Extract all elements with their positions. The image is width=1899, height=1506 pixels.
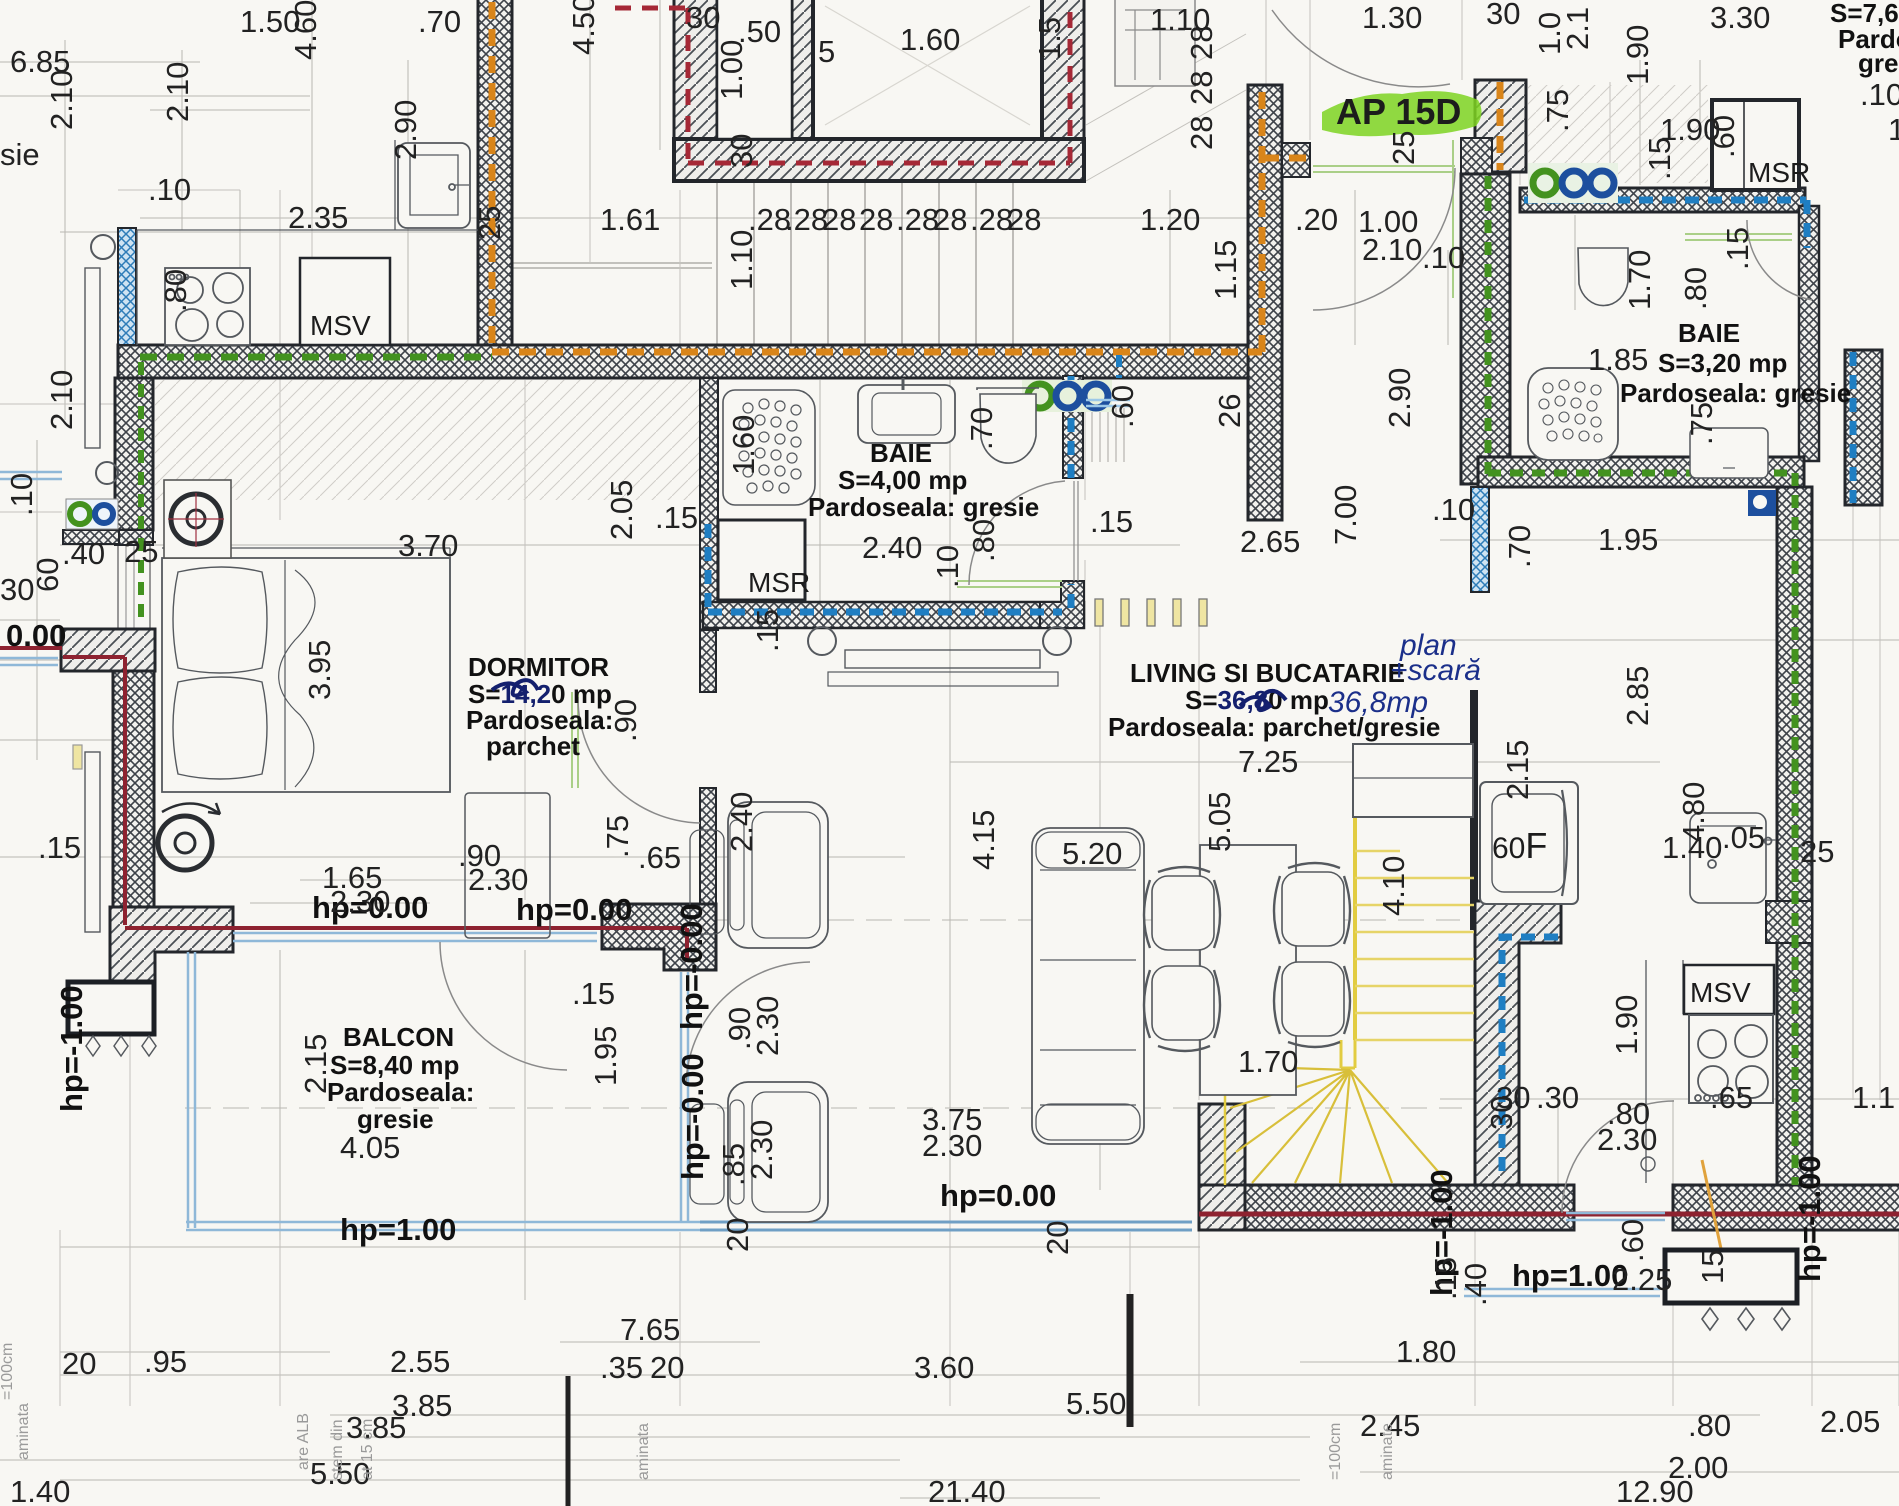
svg-text:3.30: 3.30 <box>1710 0 1770 35</box>
svg-text:gres: gres <box>1858 48 1899 78</box>
svg-text:BAIE: BAIE <box>1678 318 1740 348</box>
svg-text:.40: .40 <box>62 536 105 571</box>
svg-text:.90: .90 <box>608 699 643 742</box>
svg-text:60F: 60F <box>1492 825 1547 866</box>
svg-text:60: 60 <box>30 558 65 592</box>
svg-text:=100cm: =100cm <box>0 1343 16 1400</box>
svg-text:S=4,00 mp: S=4,00 mp <box>838 465 967 495</box>
svg-text:AP 15D: AP 15D <box>1336 91 1461 132</box>
svg-text:.20: .20 <box>1295 202 1338 237</box>
svg-text:2.40: 2.40 <box>724 792 759 852</box>
svg-text:30: 30 <box>1484 1096 1519 1130</box>
svg-text:.70: .70 <box>964 407 999 450</box>
svg-text:2.85: 2.85 <box>1620 666 1655 726</box>
svg-text:aminata: aminata <box>15 1403 32 1460</box>
svg-text:20: 20 <box>1040 1221 1075 1255</box>
svg-text:.75: .75 <box>1540 89 1575 132</box>
svg-text:MSR: MSR <box>1748 157 1810 188</box>
svg-text:21.40: 21.40 <box>928 1474 1006 1506</box>
svg-text:.80: .80 <box>158 269 193 312</box>
svg-text:5.05: 5.05 <box>1202 792 1237 852</box>
svg-text:30: 30 <box>1486 0 1520 31</box>
svg-text:25: 25 <box>1386 131 1421 165</box>
svg-text:1: 1 <box>1888 112 1899 147</box>
svg-text:BALCON: BALCON <box>343 1022 454 1052</box>
svg-text:hp=-0.00: hp=-0.00 <box>674 903 709 1030</box>
svg-text:26: 26 <box>1212 394 1247 428</box>
svg-text:plan: plan <box>1399 629 1457 662</box>
svg-text:hp=1.00: hp=1.00 <box>1512 1258 1628 1293</box>
svg-text:1.40: 1.40 <box>10 1474 70 1506</box>
svg-text:=100cm: =100cm <box>1327 1423 1344 1480</box>
svg-text:4.50: 4.50 <box>566 0 601 55</box>
svg-text:2.30: 2.30 <box>744 1120 779 1180</box>
svg-text:1.5: 1.5 <box>1032 17 1067 60</box>
svg-text:2.30: 2.30 <box>330 884 390 919</box>
svg-text:.65: .65 <box>638 840 681 875</box>
svg-text:.15: .15 <box>655 500 698 535</box>
svg-text:.15: .15 <box>572 976 615 1011</box>
svg-text:7.65: 7.65 <box>620 1312 680 1347</box>
svg-text:aminate: aminate <box>1379 1423 1396 1480</box>
svg-text:.60: .60 <box>1706 115 1741 158</box>
svg-text:.70: .70 <box>418 4 461 39</box>
svg-text:25: 25 <box>1800 834 1834 869</box>
svg-text:36,8mp: 36,8mp <box>1328 686 1428 719</box>
svg-text:15: 15 <box>1695 1250 1730 1284</box>
svg-text:0.00: 0.00 <box>6 618 66 653</box>
svg-text:20: 20 <box>720 1218 755 1252</box>
svg-text:28: 28 <box>859 202 893 237</box>
svg-text:2.30: 2.30 <box>1597 1122 1657 1157</box>
svg-text:.60: .60 <box>1615 1219 1650 1262</box>
svg-text:1.60: 1.60 <box>726 415 761 475</box>
svg-text:2.05: 2.05 <box>604 480 639 540</box>
svg-text:1.90: 1.90 <box>1609 995 1644 1055</box>
svg-text:are ALB: are ALB <box>295 1413 312 1470</box>
svg-text:S=3,20 mp: S=3,20 mp <box>1658 348 1787 378</box>
svg-text:.15: .15 <box>38 830 81 865</box>
svg-text:1.70: 1.70 <box>1622 250 1657 310</box>
svg-text:5.50: 5.50 <box>1066 1386 1126 1421</box>
svg-text:7.00: 7.00 <box>1328 485 1363 545</box>
svg-text:2.10: 2.10 <box>44 70 79 130</box>
svg-text:.10: .10 <box>148 172 191 207</box>
svg-text:1.30: 1.30 <box>1362 0 1422 35</box>
svg-text:.10: .10 <box>1432 492 1475 527</box>
svg-text:.80: .80 <box>1678 267 1713 310</box>
svg-text:3.70: 3.70 <box>398 528 458 563</box>
svg-text:.15: .15 <box>1090 504 1133 539</box>
svg-text:2.35: 2.35 <box>288 200 348 235</box>
svg-text:.10: .10 <box>1860 77 1899 112</box>
svg-text:.70: .70 <box>1502 525 1537 568</box>
svg-text:30: 30 <box>686 0 720 35</box>
svg-text:MSV: MSV <box>1690 977 1751 1008</box>
svg-text:.10: .10 <box>930 545 965 588</box>
svg-text:.75: .75 <box>1684 402 1719 445</box>
svg-text:.15: .15 <box>1642 137 1677 180</box>
svg-text:2.05: 2.05 <box>1820 1404 1880 1439</box>
svg-text:.10: .10 <box>1422 240 1465 275</box>
svg-text:2.30: 2.30 <box>468 862 528 897</box>
svg-text:.30: .30 <box>1536 1080 1579 1115</box>
svg-text:1.61: 1.61 <box>600 202 660 237</box>
svg-text:S=36,80 mp: S=36,80 mp <box>1185 685 1329 715</box>
svg-text:1.10: 1.10 <box>724 230 759 290</box>
svg-text:28: 28 <box>933 202 967 237</box>
svg-text:DORMITOR: DORMITOR <box>468 652 609 682</box>
svg-text:Pardoseala: gresie: Pardoseala: gresie <box>808 492 1039 522</box>
svg-text:7.25: 7.25 <box>1238 744 1298 779</box>
svg-text:28: 28 <box>1007 202 1041 237</box>
svg-text:LIVING SI BUCATARIE: LIVING SI BUCATARIE <box>1130 658 1405 688</box>
svg-text:.15: .15 <box>1720 227 1755 270</box>
svg-text:2.15: 2.15 <box>298 1034 333 1094</box>
svg-text:12.90: 12.90 <box>1616 1474 1694 1506</box>
svg-text:2.15: 2.15 <box>1500 740 1535 800</box>
svg-text:4.10: 4.10 <box>1376 856 1411 916</box>
svg-text:BAIE: BAIE <box>870 438 932 468</box>
svg-text:hp=0.00: hp=0.00 <box>940 1178 1056 1213</box>
svg-text:2.65: 2.65 <box>1240 524 1300 559</box>
svg-text:2.1: 2.1 <box>1560 7 1595 50</box>
svg-text:1.00: 1.00 <box>714 40 749 100</box>
svg-text:4.60: 4.60 <box>288 0 323 60</box>
svg-text:1.95: 1.95 <box>1598 522 1658 557</box>
svg-text:1.95: 1.95 <box>588 1026 623 1086</box>
svg-text:hp=-0.00: hp=-0.00 <box>675 1053 710 1180</box>
svg-text:1.90: 1.90 <box>1620 25 1655 85</box>
svg-text:2.25: 2.25 <box>1612 1262 1672 1297</box>
svg-text:20: 20 <box>62 1346 96 1381</box>
svg-text:1.40: 1.40 <box>1662 830 1722 865</box>
svg-text:.40: .40 <box>1458 1263 1493 1306</box>
svg-text:5.20: 5.20 <box>1062 836 1122 871</box>
svg-text:aminata: aminata <box>635 1423 652 1480</box>
svg-text:2.30: 2.30 <box>922 1128 982 1163</box>
svg-text:28: 28 <box>1184 116 1219 150</box>
svg-text:3.95: 3.95 <box>302 640 337 700</box>
svg-text:sie: sie <box>0 137 40 172</box>
svg-text:2.10: 2.10 <box>160 62 195 122</box>
svg-text:hp=-1.00: hp=-1.00 <box>54 985 89 1112</box>
svg-text:2.10: 2.10 <box>44 370 79 430</box>
svg-text:.80: .80 <box>966 519 1001 562</box>
svg-text:1.20: 1.20 <box>1140 202 1200 237</box>
svg-text:3.60: 3.60 <box>914 1350 974 1385</box>
svg-text:2.90: 2.90 <box>388 100 423 160</box>
svg-text:Pardoseala: gresie: Pardoseala: gresie <box>1620 378 1851 408</box>
svg-text:1.80: 1.80 <box>1396 1334 1456 1369</box>
svg-text:.80: .80 <box>1688 1408 1731 1443</box>
svg-text:.75: .75 <box>600 815 635 858</box>
svg-text:.10: .10 <box>4 473 39 516</box>
svg-text:at 15 cm: at 15 cm <box>359 1419 376 1480</box>
svg-text:4.05: 4.05 <box>340 1130 400 1165</box>
svg-text:1.85: 1.85 <box>1588 342 1648 377</box>
svg-text:28: 28 <box>822 202 856 237</box>
svg-text:2.90: 2.90 <box>1382 368 1417 428</box>
svg-text:2.30: 2.30 <box>750 996 785 1056</box>
svg-text:1.70: 1.70 <box>1238 1044 1298 1079</box>
svg-text:hp=1.00: hp=1.00 <box>340 1212 456 1247</box>
svg-text:.65: .65 <box>1710 1080 1753 1115</box>
svg-text:S=8,40 mp: S=8,40 mp <box>330 1050 459 1080</box>
svg-text:28: 28 <box>1184 26 1219 60</box>
svg-text:30: 30 <box>724 134 759 168</box>
svg-text:4.15: 4.15 <box>966 810 1001 870</box>
svg-text:3.85: 3.85 <box>346 1410 406 1445</box>
svg-text:.60: .60 <box>1105 385 1140 428</box>
svg-text:parchet: parchet <box>486 731 580 761</box>
svg-text:2.40: 2.40 <box>862 530 922 565</box>
svg-text:25: 25 <box>472 206 507 240</box>
svg-text:20: 20 <box>650 1350 684 1385</box>
svg-text:25: 25 <box>124 534 158 569</box>
svg-text:hp=-1.00: hp=-1.00 <box>1792 1155 1827 1282</box>
svg-text:.15: .15 <box>750 609 785 652</box>
svg-text:stem din: stem din <box>329 1420 346 1480</box>
svg-text:1.1: 1.1 <box>1852 1080 1895 1115</box>
svg-text:2.10: 2.10 <box>1362 232 1422 267</box>
svg-text:1.15: 1.15 <box>1208 240 1243 300</box>
svg-text:1.60: 1.60 <box>900 22 960 57</box>
svg-text:28: 28 <box>1184 71 1219 105</box>
svg-text:.35: .35 <box>600 1350 643 1385</box>
svg-text:Pardoseala:: Pardoseala: <box>327 1077 474 1107</box>
svg-text:2.55: 2.55 <box>390 1344 450 1379</box>
svg-text:.05: .05 <box>1722 820 1765 855</box>
svg-text:hp=0.00: hp=0.00 <box>516 892 632 927</box>
svg-text:.95: .95 <box>144 1344 187 1379</box>
svg-text:MSR: MSR <box>748 567 810 598</box>
svg-text:5: 5 <box>818 34 835 69</box>
svg-text:MSV: MSV <box>310 310 371 341</box>
